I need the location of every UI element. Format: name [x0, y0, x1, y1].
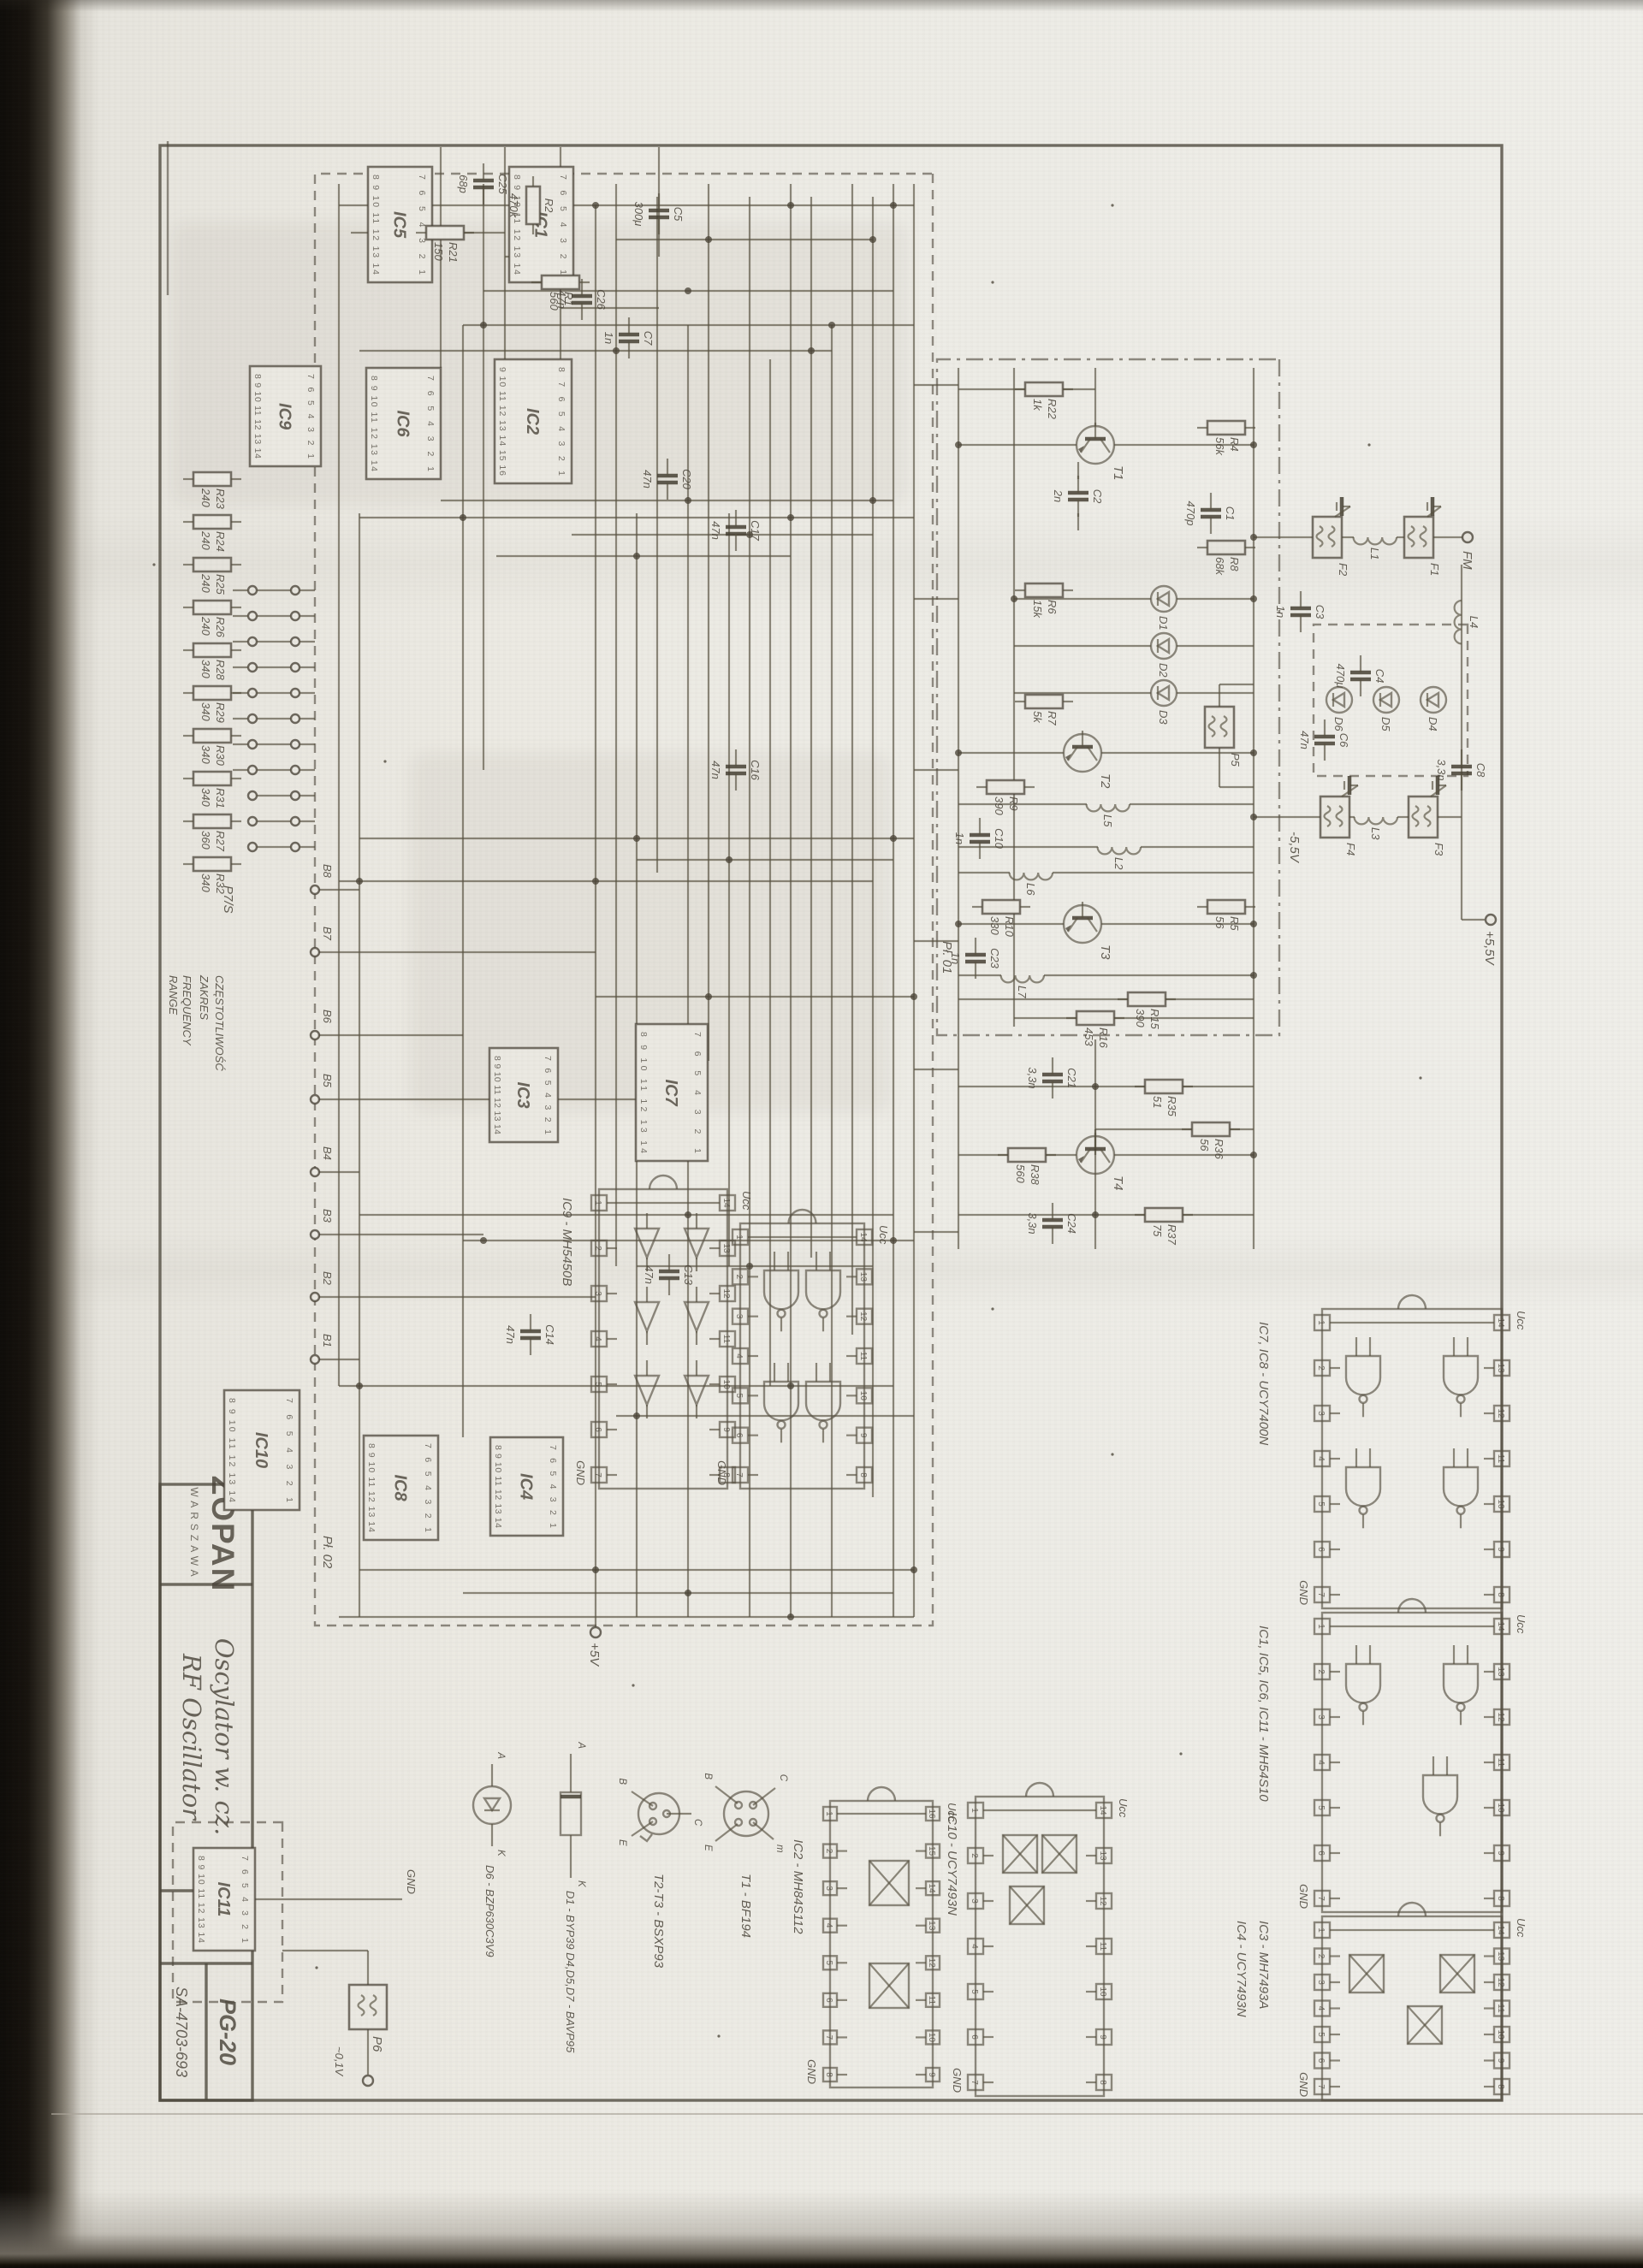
- label: A: [576, 1741, 586, 1749]
- coil-L7: [1001, 975, 1044, 982]
- pin-number: 13: [927, 1921, 936, 1931]
- nand-gate: [1444, 1356, 1478, 1395]
- label: L2: [1112, 857, 1125, 870]
- pin-number: 13: [1098, 1851, 1107, 1861]
- label: F3: [1432, 843, 1445, 856]
- label: IC5: [390, 211, 409, 239]
- resistor-R5: [1207, 900, 1245, 914]
- junction-dot: [356, 878, 363, 885]
- pin-number: 1: [1316, 1624, 1326, 1629]
- pinout-dip-4: [599, 1189, 727, 1489]
- paper-speck: [1179, 1752, 1182, 1755]
- label: 56k: [1213, 437, 1226, 456]
- label: 240: [199, 573, 212, 593]
- junction-dot: [869, 236, 876, 243]
- label: IC1, IC5, IC6, IC11 - MH54S10: [1256, 1625, 1271, 1802]
- label: WARSZAWA: [188, 1487, 200, 1580]
- label: IC9 - MH5450B: [560, 1198, 574, 1286]
- connector-pad: [248, 843, 257, 851]
- label: 1n: [602, 332, 615, 344]
- wire: [1081, 439, 1090, 453]
- junction-dot: [787, 1614, 794, 1620]
- nand-gate: [1423, 1775, 1457, 1814]
- pin-number: 10: [1496, 1499, 1505, 1509]
- label: GND: [1297, 1884, 1310, 1909]
- label: IC10 - UCY7493N: [945, 1812, 959, 1916]
- connector-pad: [248, 766, 257, 774]
- resistor-R1: [542, 275, 579, 289]
- pin-number: 2: [1316, 1669, 1326, 1674]
- pin-number: 1: [1316, 1928, 1326, 1933]
- wire: [1068, 747, 1077, 761]
- pinout-dip-3: [740, 1223, 864, 1489]
- resistor-R9: [987, 780, 1024, 794]
- paper-speck: [1111, 1453, 1113, 1455]
- label: GND: [1297, 2072, 1310, 2097]
- pin-number: 4: [1316, 1456, 1326, 1461]
- resistor-R29: [193, 686, 231, 700]
- buffer-gate: [635, 1229, 659, 1258]
- diode-triangle: [1158, 686, 1169, 700]
- label: 240: [199, 530, 212, 550]
- label: F2: [1337, 563, 1349, 577]
- label: R21: [447, 242, 460, 263]
- nand-gate: [806, 1270, 840, 1309]
- junction-dot: [726, 856, 733, 863]
- wire: [1100, 1149, 1110, 1163]
- label: FM: [1460, 551, 1474, 570]
- junction-dot: [633, 835, 640, 842]
- pin-number: 10: [1098, 1987, 1107, 1997]
- pin-number: 1: [970, 1808, 979, 1813]
- terminal: [1462, 532, 1473, 542]
- connector-pad: [248, 740, 257, 749]
- label: Ucc: [1515, 1614, 1527, 1634]
- junction-dot: [705, 993, 712, 1000]
- label: B2: [321, 1271, 334, 1286]
- label: R15: [1148, 1009, 1161, 1030]
- book-gutter-shadow: [0, 0, 98, 2268]
- label: 3,3n: [1026, 1067, 1039, 1088]
- connector-pad: [291, 740, 300, 749]
- resistor-R28: [193, 643, 231, 657]
- pin-number: 7: [1316, 1896, 1326, 1901]
- resistor-R15: [1128, 992, 1166, 1006]
- label: R35: [1166, 1096, 1178, 1117]
- label: F4: [1344, 843, 1357, 856]
- label: R24: [214, 531, 227, 552]
- label: RANGE: [167, 975, 180, 1016]
- label: R27: [214, 831, 227, 852]
- ic-pin-row: 8 9 10 11 12 13 14: [252, 374, 263, 459]
- label: C17: [749, 520, 762, 542]
- pin-number: 1: [824, 1811, 833, 1816]
- label: R9: [1007, 796, 1020, 811]
- buffer-gate: [635, 1376, 659, 1405]
- pin-number: 1: [734, 1235, 744, 1240]
- coil-L5: [1087, 804, 1130, 811]
- nand-gate: [1346, 1664, 1380, 1702]
- buffer-gate: [635, 1302, 659, 1331]
- label: GND: [1297, 1580, 1310, 1605]
- junction-dot: [592, 878, 599, 885]
- bus-pad-B8: [311, 885, 319, 894]
- gate-bubble: [778, 1310, 786, 1318]
- junction-dot: [955, 921, 962, 927]
- ic-pin-row: 8 9 10 11 12 13 14: [493, 1445, 503, 1528]
- label: D6: [1332, 717, 1345, 731]
- connector-pad: [291, 637, 300, 646]
- label: B7: [321, 927, 334, 941]
- label: B: [703, 1773, 713, 1779]
- junction-dot: [633, 1412, 640, 1419]
- bus-pad-B3: [311, 1230, 319, 1239]
- coil-L6: [1010, 873, 1053, 879]
- label: 453: [1082, 1027, 1095, 1046]
- label: B1: [321, 1334, 334, 1347]
- pin-number: 4: [1316, 2006, 1326, 2011]
- ic-pin-row: 8 7 6 5 4 3 2 1: [556, 367, 566, 476]
- label: 150: [432, 242, 445, 261]
- dip-notch: [1398, 1903, 1426, 1916]
- label: R23: [214, 489, 227, 510]
- label: 68k: [1213, 557, 1226, 576]
- pin-number: 6: [593, 1427, 602, 1432]
- connector-pad: [291, 843, 300, 851]
- gate-bubble: [1457, 1507, 1465, 1514]
- pin-number: 7: [824, 2035, 833, 2040]
- junction-dot: [480, 1237, 487, 1244]
- label: 47n: [643, 1265, 655, 1284]
- junction-dot: [1250, 921, 1257, 927]
- label: P6: [370, 2036, 384, 2052]
- label: IC2: [523, 408, 542, 435]
- label: R16: [1097, 1027, 1110, 1049]
- package-d6: [473, 1786, 511, 1824]
- pin-number: 14: [1496, 1621, 1505, 1631]
- connector-pad: [248, 791, 257, 800]
- label: IC6: [394, 410, 412, 437]
- pin-number: 3: [734, 1314, 744, 1319]
- label: C5: [672, 207, 685, 222]
- pin-number: 9: [858, 1433, 868, 1438]
- connector-pad: [291, 766, 300, 774]
- label: L3: [1369, 827, 1382, 840]
- pinout-dip-0: [1322, 1309, 1502, 1608]
- pin-number: 13: [1496, 1363, 1505, 1373]
- junction-dot: [1250, 1152, 1257, 1158]
- dip-notch: [1398, 1295, 1426, 1309]
- label: D2: [1157, 663, 1170, 678]
- pinout-dip-1: [1322, 1613, 1502, 1912]
- label: C: [778, 1774, 788, 1782]
- label: IC11: [214, 1882, 233, 1917]
- label: IC3 - MH7493A: [1256, 1921, 1271, 2009]
- pin-number: 9: [927, 2072, 936, 2077]
- junction-dot: [869, 497, 876, 504]
- label: 47n: [709, 761, 722, 779]
- diode-triangle: [1427, 693, 1438, 707]
- gate-bubble: [1437, 1815, 1444, 1822]
- schematic-rotated-layer: Pł. 01Pł. 02ZOPANWARSZAWAOscylator w. cz…: [152, 141, 1527, 2100]
- label: 51: [1151, 1096, 1164, 1108]
- junction-dot: [480, 322, 487, 329]
- connector-pad: [291, 663, 300, 672]
- pin-number: 2: [1316, 1365, 1326, 1371]
- resistor-R2: [526, 187, 540, 224]
- pin-number: 4: [1316, 1760, 1326, 1765]
- label: C7: [642, 331, 655, 346]
- pin-number: 4: [734, 1353, 744, 1359]
- ic-pin-row: 8 9 10 11 12 13 14: [512, 175, 522, 275]
- bus-pad-B2: [311, 1293, 319, 1301]
- label: Ucc: [1117, 1798, 1130, 1818]
- label: R31: [214, 788, 227, 808]
- resistor-R16: [1077, 1011, 1114, 1025]
- bus-pad-B1: [311, 1355, 319, 1364]
- label: D5: [1379, 717, 1392, 731]
- pin-number: 10: [1496, 2029, 1505, 2040]
- resistor-R30: [193, 729, 231, 743]
- label: IC4 - UCY7493N: [1234, 1921, 1249, 2017]
- label: 340: [199, 873, 212, 892]
- dip-notch: [868, 1787, 895, 1801]
- label: ~0,1V: [333, 2046, 346, 2077]
- pin-number: 12: [1098, 1896, 1107, 1906]
- pin-number: 9: [1496, 2058, 1505, 2064]
- label: R4: [1228, 437, 1241, 452]
- label: 47n: [641, 470, 654, 489]
- pin-number: 10: [721, 1379, 731, 1389]
- pin-number: 3: [1316, 1714, 1326, 1720]
- diode-D5: [1373, 687, 1399, 713]
- connector-pad: [248, 612, 257, 620]
- label: L5: [1101, 814, 1114, 827]
- diode-triangle: [1158, 639, 1169, 653]
- pinout-dip-6: [830, 1801, 933, 2087]
- label: 330: [988, 916, 1001, 935]
- p6-filter: [349, 1985, 387, 2029]
- label: C14: [543, 1324, 556, 1345]
- label: +5V: [587, 1643, 602, 1667]
- junction-dot: [955, 441, 962, 448]
- label: D1: [1157, 616, 1170, 631]
- label: L4: [1468, 616, 1480, 628]
- junction-dot: [787, 514, 794, 521]
- diode-triangle: [1380, 693, 1391, 707]
- resistor-R10: [982, 900, 1020, 914]
- pin-number: 3: [970, 1898, 979, 1904]
- label: R25: [214, 574, 227, 595]
- label: K: [576, 1880, 586, 1888]
- paper-speck: [383, 760, 386, 762]
- pin-number: 14: [1496, 1318, 1505, 1328]
- label: 340: [199, 745, 212, 764]
- ic-pin-row: 8 9 10 11 12 13 14: [369, 376, 379, 471]
- junction-dot: [356, 1383, 363, 1389]
- pin-number: 2: [970, 1853, 979, 1858]
- connector-pad: [248, 817, 257, 826]
- label: T2: [1098, 773, 1112, 789]
- label: R37: [1166, 1224, 1178, 1246]
- junction-dot: [685, 1211, 691, 1218]
- label: Ucc: [1515, 1311, 1527, 1330]
- connector-pad: [248, 663, 257, 672]
- pin-number: 5: [824, 1961, 833, 1966]
- label: 340: [199, 702, 212, 721]
- bus-pad-B4: [311, 1168, 319, 1176]
- pin-number: 7: [1316, 2084, 1326, 2089]
- label: Ucc: [740, 1191, 753, 1211]
- junction-dot: [1092, 1083, 1099, 1090]
- label: B3: [321, 1209, 334, 1223]
- junction-dot: [460, 514, 466, 521]
- label: B: [617, 1778, 627, 1785]
- connector-pad: [248, 689, 257, 697]
- label: 560: [1014, 1164, 1027, 1183]
- junction-dot: [1092, 1211, 1099, 1218]
- label: T3: [1098, 945, 1112, 960]
- resistor-R32: [193, 857, 231, 871]
- label: L1: [1368, 548, 1381, 560]
- label: R36: [1213, 1139, 1225, 1160]
- resistor-R4: [1207, 421, 1245, 435]
- label: P5: [1229, 753, 1242, 767]
- label: K: [495, 1850, 506, 1857]
- label: D1 - BYP39 D4,D5,D7 - BAVP95: [564, 1891, 577, 2053]
- label: IC7: [661, 1079, 680, 1106]
- resistor-R8: [1207, 541, 1245, 554]
- label: Pł. 02: [320, 1536, 335, 1569]
- pin-number: 2: [1316, 1954, 1326, 1959]
- wire: [1088, 747, 1097, 761]
- ic-pin-row: 8 9 10 11 12 13 14: [196, 1856, 206, 1943]
- dip-notch: [649, 1175, 677, 1189]
- label: ZAKRES: [198, 974, 211, 1020]
- pin-number: 11: [1496, 2004, 1505, 2013]
- label: IC9: [276, 403, 294, 430]
- pin-number: 12: [858, 1312, 868, 1322]
- junction-dot: [685, 287, 691, 294]
- pin-number: 6: [1316, 1851, 1326, 1856]
- junction-dot: [955, 749, 962, 756]
- pin-number: 13: [1496, 1951, 1505, 1962]
- connector-pad: [291, 817, 300, 826]
- gate-bubble: [1360, 1703, 1367, 1711]
- pin-number: 3: [593, 1291, 602, 1296]
- label: R38: [1029, 1164, 1041, 1186]
- resistor-R35: [1145, 1080, 1183, 1093]
- resistor-R38: [1008, 1148, 1046, 1162]
- pin-number: 12: [721, 1288, 731, 1299]
- label: 390: [1134, 1009, 1147, 1027]
- label: L7: [1016, 986, 1029, 998]
- paper-speck: [1419, 1076, 1421, 1079]
- paper-speck: [717, 2034, 720, 2037]
- nand-gate: [1346, 1467, 1380, 1506]
- ic-pin-row: 8 9 10 11 12 13 14: [371, 175, 381, 275]
- label: R2: [543, 198, 555, 213]
- label: Oscylator w. cz.: [210, 1638, 239, 1836]
- label: B6: [321, 1010, 334, 1024]
- paper-speck: [315, 1966, 317, 1969]
- label: Ucc: [1515, 1918, 1527, 1938]
- resistor-R25: [193, 558, 231, 571]
- nand-gate: [1444, 1467, 1478, 1506]
- pin-number: 11: [1496, 1454, 1505, 1464]
- wire: [632, 1791, 653, 1806]
- pin-number: 7: [1316, 1592, 1326, 1597]
- pin-number: 5: [1316, 2032, 1326, 2037]
- pin-number: 12: [1496, 1712, 1505, 1722]
- pin-number: 11: [1496, 1758, 1505, 1768]
- gate-bubble: [1360, 1507, 1367, 1514]
- coil-L3: [1355, 817, 1397, 824]
- coil-L4: [1455, 601, 1462, 643]
- page-bottom-edge-shadow: [0, 2190, 1643, 2268]
- pin-number: 11: [721, 1335, 731, 1344]
- label: C21: [1065, 1068, 1078, 1088]
- label: B5: [321, 1074, 334, 1088]
- resistor-R27: [193, 814, 231, 828]
- ic-pin-row: 8 9 10 11 12 13 14: [492, 1056, 502, 1134]
- label: 1k: [1031, 399, 1044, 412]
- label: T2-T3 - BSXP93: [651, 1874, 666, 1969]
- label: 68p: [457, 175, 470, 193]
- pin-number: 9: [721, 1427, 731, 1432]
- bus-pad-B7: [311, 948, 319, 956]
- label: R8: [1228, 557, 1241, 571]
- label: 5k: [1031, 711, 1044, 724]
- resistor-R6: [1025, 583, 1063, 597]
- label: C6: [1338, 733, 1350, 748]
- coil-L1: [1354, 537, 1397, 544]
- junction-dot: [787, 202, 794, 209]
- label: PG-20: [215, 1999, 240, 2065]
- label: 47n: [709, 521, 722, 540]
- junction-dot: [1250, 972, 1257, 979]
- resistor-R21: [426, 226, 464, 240]
- label: 240: [199, 616, 212, 636]
- terminal: [363, 2076, 373, 2086]
- resistor-R31: [193, 772, 231, 785]
- nand-gate: [1346, 1356, 1380, 1395]
- pin-number: 14: [721, 1198, 731, 1208]
- diode-D1: [1151, 586, 1177, 612]
- resistor-R36: [1192, 1122, 1230, 1136]
- junction-dot: [890, 835, 897, 842]
- label: IC2 - MH84S112: [791, 1839, 805, 1934]
- pin-number: 5: [970, 1989, 979, 1994]
- coil-L2: [1098, 847, 1141, 854]
- pin-number: 5: [593, 1382, 602, 1387]
- label: IC7, IC8 - UCY7400N: [1256, 1322, 1271, 1445]
- wire: [1100, 439, 1110, 453]
- label: R22: [1046, 399, 1059, 420]
- junction-dot: [1250, 441, 1257, 448]
- label: C: [692, 1819, 703, 1827]
- label: C24: [1065, 1213, 1078, 1234]
- terminal: [590, 1627, 601, 1637]
- scanned-page: Pł. 01Pł. 02ZOPANWARSZAWAOscylator w. cz…: [0, 0, 1643, 2268]
- label: 1n: [949, 952, 962, 964]
- label: 300μ: [632, 202, 645, 227]
- label: C25: [496, 174, 509, 195]
- pin-number: 5: [1316, 1805, 1326, 1810]
- pin-number: 6: [824, 1998, 833, 2003]
- label: R29: [214, 702, 227, 723]
- ic-pin-row: 8 9 10 11 12 13 14: [227, 1398, 237, 1502]
